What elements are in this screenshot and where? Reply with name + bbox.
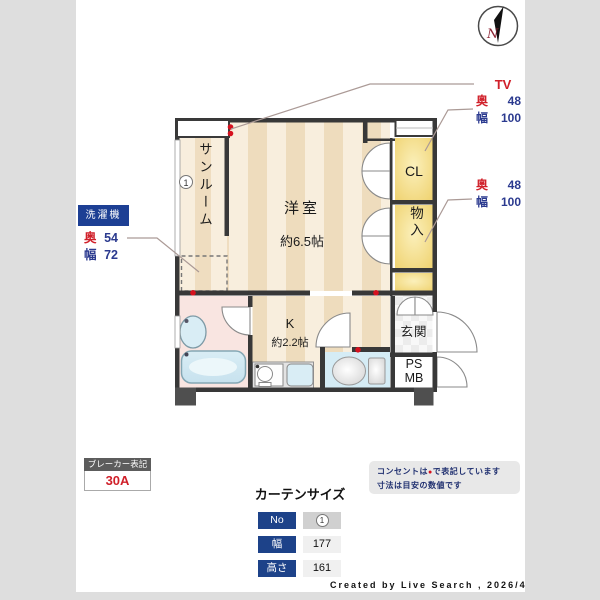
genkan-label: 玄関 (394, 321, 434, 340)
bath-sink-faucet (185, 319, 189, 323)
kitchen-size: 約2.2帖 (250, 334, 330, 350)
curtain-row-height-label: 高さ (258, 560, 296, 577)
entrance-door-swing (437, 312, 477, 352)
wall-stub-topright (363, 122, 368, 143)
cl-depth-label: 奥 (476, 93, 488, 110)
compass-n-label: N (486, 27, 499, 42)
cl-depth-value: 48 (508, 93, 521, 110)
kitchen-sink (287, 364, 313, 386)
washer-depth-label: 奥 (84, 230, 97, 247)
toilet-tank (369, 358, 386, 384)
cl-label: CL (396, 163, 432, 179)
outlet-note-box: コンセントは●で表記しています 寸法は目安の数値です (369, 461, 520, 494)
curtain-row-height-value: 161 (303, 560, 341, 577)
wall-bottom (175, 388, 437, 393)
cl-width-value: 100 (501, 110, 521, 127)
curtain-row-width-label: 幅 (258, 536, 296, 553)
outlet-dot-hall (373, 290, 379, 296)
wall-divider-right (352, 291, 437, 296)
bathtub-faucet (185, 353, 189, 357)
note-line-2: 寸法は目安の数値です (377, 479, 520, 492)
kitchen-label: K (270, 316, 310, 331)
stove-knob (256, 365, 260, 369)
wall-right-upper (433, 118, 438, 312)
stove-grill (259, 383, 271, 387)
wall-storage-bottom (390, 268, 433, 273)
storage-depth-value: 48 (508, 177, 521, 194)
compass: N (479, 7, 518, 46)
pillar-bottom-left (175, 388, 196, 406)
curtain-row-no-label: No (258, 512, 296, 529)
breaker-value: 30A (84, 471, 151, 491)
curtain-row-no-value: 1 (303, 512, 341, 529)
curtain-row-width-value: 177 (303, 536, 341, 553)
washer-width-value: 72 (104, 247, 118, 264)
wall-closet-face (390, 138, 393, 296)
washer-width-label: 幅 (84, 247, 97, 264)
curtain-marker-1: 1 (179, 175, 193, 189)
curtain-no-circle: 1 (316, 514, 329, 527)
bath-sink (180, 316, 206, 348)
note-line-1: コンセントは●で表記しています (377, 465, 520, 479)
tv-label: TV (488, 77, 518, 92)
balcony-bay (177, 120, 229, 137)
outlet-dot-toilet (355, 347, 361, 353)
outlet-dot-tv-2 (228, 131, 234, 137)
sunroom-label: サンルーム (194, 142, 214, 230)
washer-badge: 洗濯機 (78, 205, 129, 226)
note-line1-suffix: で表記しています (433, 467, 501, 476)
bathtub-highlight (189, 358, 237, 376)
storage-width-label: 幅 (476, 194, 488, 211)
wall-sunroom-partition (225, 122, 230, 236)
ps-label: PS (394, 357, 434, 371)
note-line1-prefix: コンセントは (377, 467, 428, 476)
storage-width-value: 100 (501, 194, 521, 211)
outlet-dot-washer (190, 290, 196, 296)
storage-depth-label: 奥 (476, 177, 488, 194)
storage-dimensions: 奥 48 幅 100 (476, 177, 521, 211)
stove-burner (258, 367, 273, 382)
credit-text: Created by Live Search , 2026/4 (330, 580, 520, 590)
breaker-box: ブレーカー表記 30A (84, 458, 151, 491)
breaker-title: ブレーカー表記 (84, 458, 151, 471)
living-room-label: 洋室 (262, 197, 342, 218)
bath-window (175, 316, 180, 348)
sunroom-window (175, 140, 180, 256)
wall-cl-storage (390, 200, 433, 205)
wall-bath-upper (248, 296, 253, 307)
cl-width-label: 幅 (476, 110, 488, 127)
small-closet-floor (395, 273, 433, 291)
psmb-door-swing (437, 357, 467, 387)
wall-toilet-left (320, 347, 325, 388)
washer-dimensions: 奥 54 幅 72 (84, 230, 118, 264)
storage-label: 物入 (405, 206, 425, 239)
cl-dimensions: 奥 48 幅 100 (476, 93, 521, 127)
wall-cl-top (367, 139, 395, 142)
pillar-bottom-right (414, 388, 434, 406)
washer-depth-value: 54 (104, 230, 118, 247)
mb-label: MB (394, 371, 434, 385)
floorplan-page: N サンルーム 1 洋室 約6.5帖 CL 物入 玄関 PS MB K 約2.2… (0, 0, 600, 600)
living-room-size: 約6.5帖 (262, 231, 342, 250)
curtain-title: カーテンサイズ (250, 484, 350, 503)
toilet-bowl (333, 357, 366, 385)
